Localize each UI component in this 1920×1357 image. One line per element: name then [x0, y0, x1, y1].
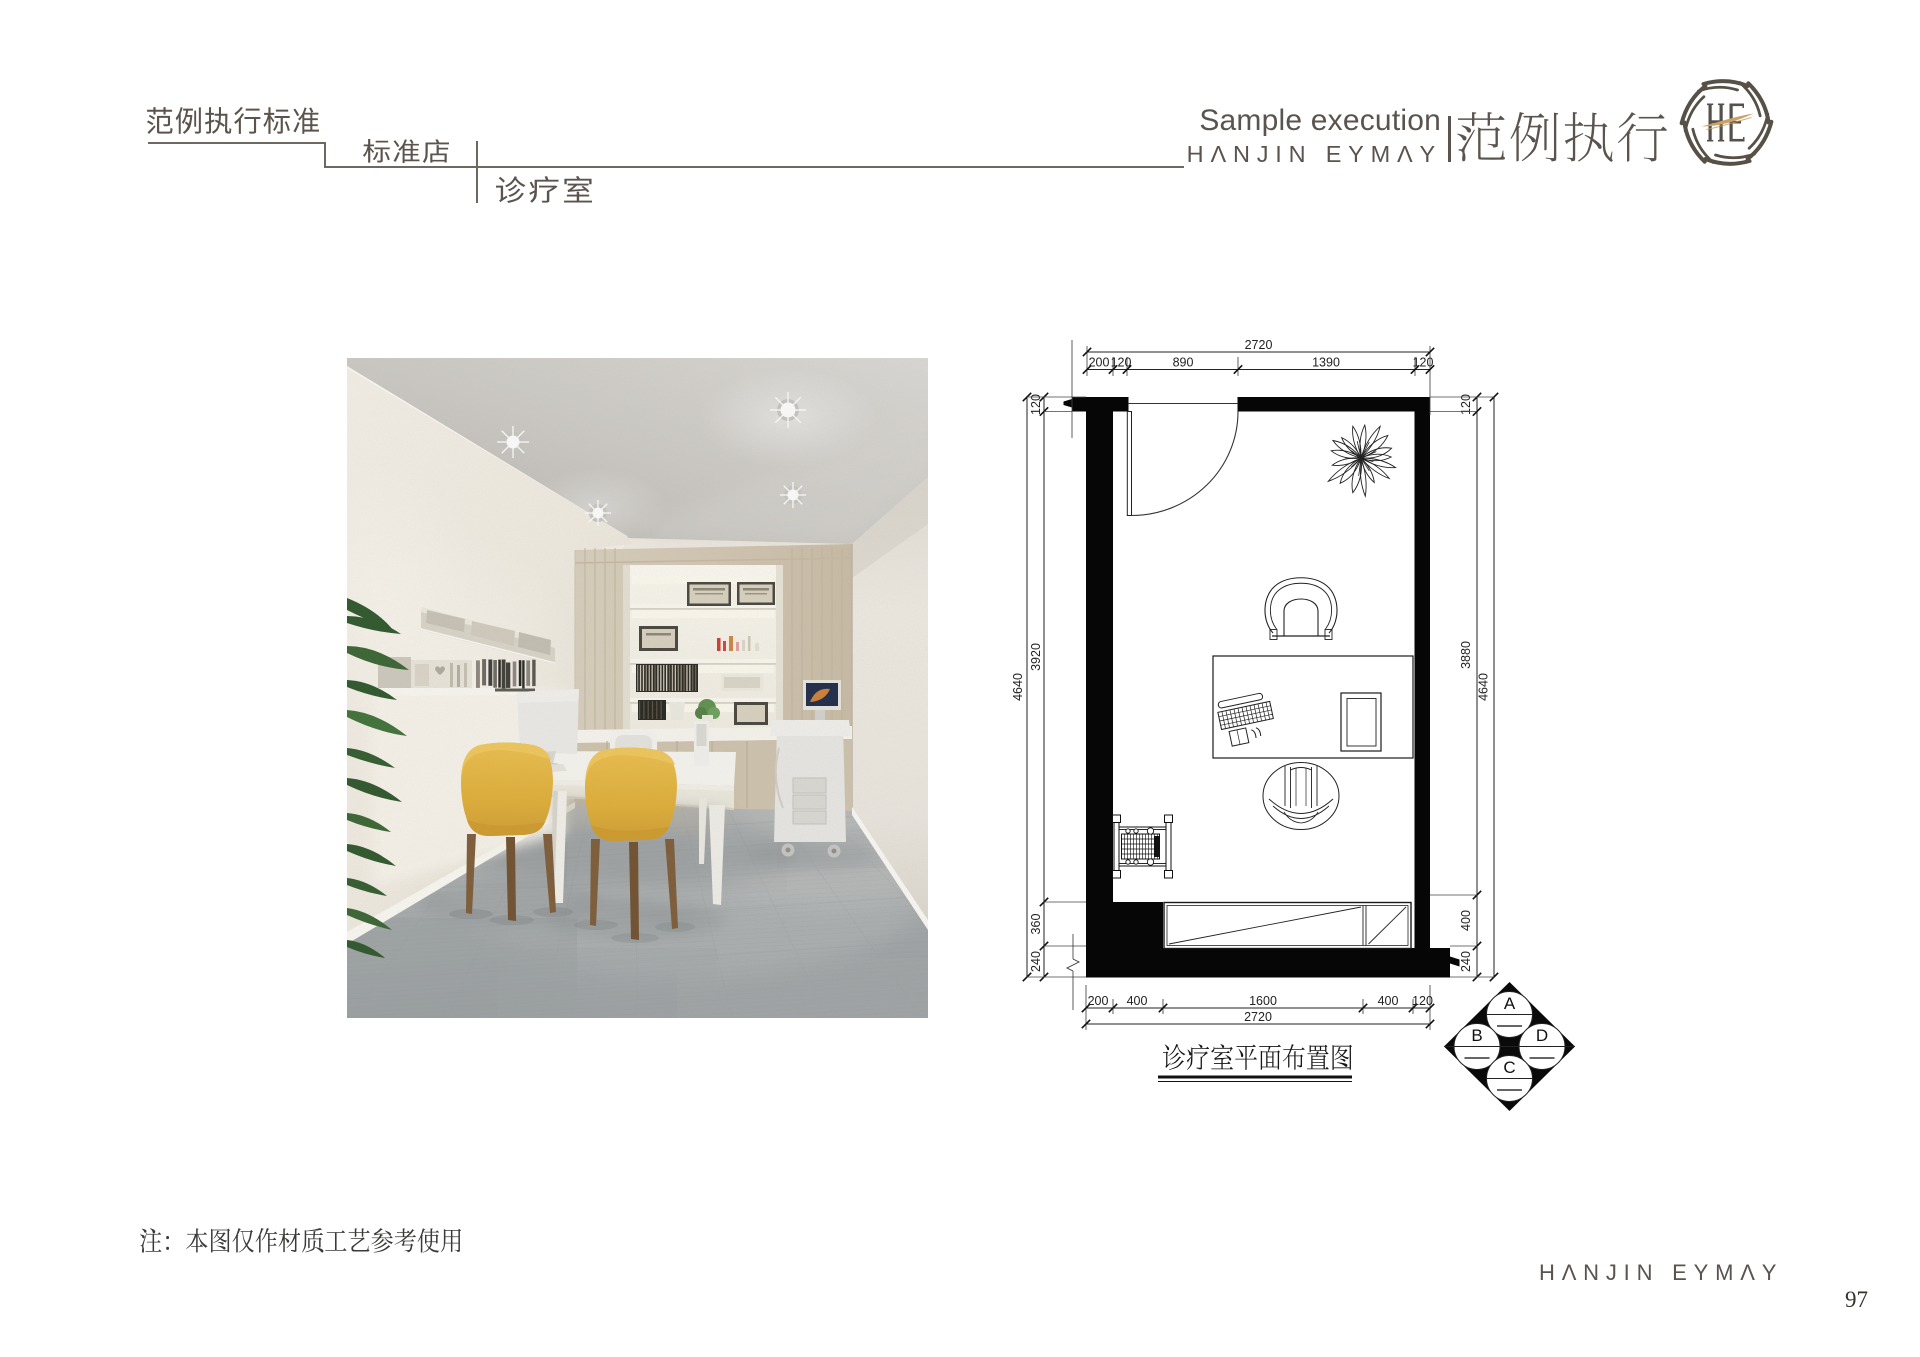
svg-text:A: A [1504, 994, 1516, 1013]
svg-text:120: 120 [1111, 356, 1132, 370]
svg-text:120: 120 [1412, 994, 1433, 1008]
svg-text:3880: 3880 [1459, 641, 1473, 669]
svg-text:120: 120 [1413, 356, 1434, 370]
svg-text:890: 890 [1173, 356, 1194, 370]
svg-text:400: 400 [1459, 910, 1473, 931]
svg-text:2720: 2720 [1244, 1010, 1272, 1024]
svg-text:B: B [1471, 1026, 1482, 1045]
svg-text:400: 400 [1378, 994, 1399, 1008]
svg-text:3920: 3920 [1029, 643, 1043, 671]
svg-text:4640: 4640 [1011, 673, 1025, 701]
svg-text:D: D [1536, 1026, 1548, 1045]
svg-text:1600: 1600 [1249, 994, 1277, 1008]
svg-text:240: 240 [1029, 951, 1043, 972]
svg-text:200: 200 [1088, 994, 1109, 1008]
svg-text:1390: 1390 [1312, 356, 1340, 370]
svg-text:C: C [1503, 1058, 1515, 1077]
svg-text:200: 200 [1089, 356, 1110, 370]
svg-text:2720: 2720 [1245, 338, 1273, 352]
svg-text:400: 400 [1127, 994, 1148, 1008]
svg-text:240: 240 [1459, 951, 1473, 972]
svg-text:360: 360 [1029, 914, 1043, 935]
svg-text:4640: 4640 [1477, 673, 1491, 701]
